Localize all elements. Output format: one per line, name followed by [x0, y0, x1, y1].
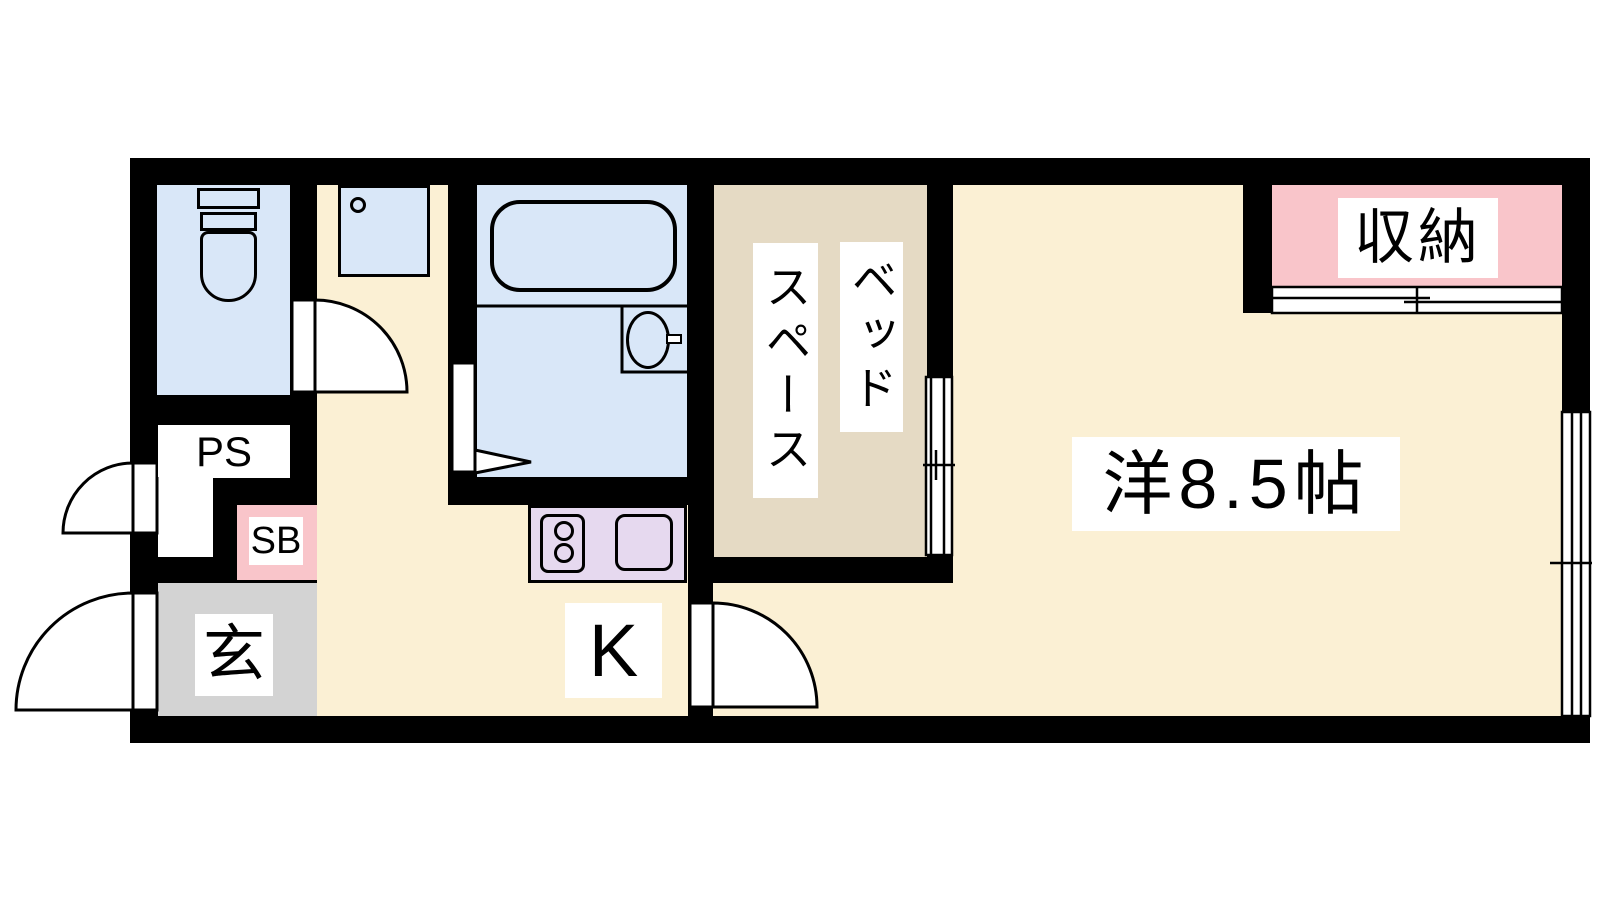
washbasin-counter-line: [622, 306, 687, 372]
kitchen-swing-door: [713, 603, 817, 707]
meter-box-door-leaf: [133, 463, 157, 533]
folding-door-mark: [475, 450, 531, 473]
pipe-space-label: PS: [158, 427, 290, 477]
kitchen-door-leaf: [690, 603, 713, 707]
storage-sliding-door: [1272, 287, 1562, 313]
meter-box-door: [63, 463, 133, 533]
storage-label: 収納: [1338, 198, 1498, 278]
entrance-door-leaf: [133, 593, 157, 710]
toilet-swing-door: [315, 300, 407, 392]
bed-space-label-2: スペース: [753, 243, 818, 498]
bed-space-sliding-door: [923, 377, 955, 555]
floor-plan: PS SB 玄 K ベッド スペース 収納 洋8.5帖: [0, 0, 1600, 900]
entrance-label: 玄: [195, 614, 273, 696]
kitchen-label: K: [565, 603, 662, 698]
western-room-label: 洋8.5帖: [1072, 437, 1400, 531]
bed-space-label-1: ベッド: [840, 242, 903, 432]
sliding-window: [1550, 412, 1592, 716]
toilet-door-leaf: [292, 300, 315, 392]
shoe-box-label: SB: [249, 517, 303, 565]
entrance-swing-door: [16, 593, 133, 710]
bathroom-folding-door: [452, 363, 475, 472]
